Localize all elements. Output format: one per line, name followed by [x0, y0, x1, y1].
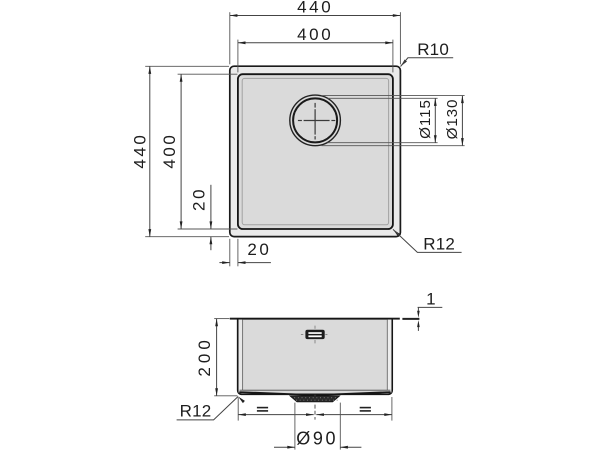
svg-text:400: 400 [297, 25, 333, 44]
svg-text:440: 440 [297, 0, 333, 17]
svg-text:20: 20 [247, 240, 271, 259]
svg-text:20: 20 [189, 187, 208, 211]
svg-text:1: 1 [426, 290, 435, 309]
svg-text:R12: R12 [423, 234, 455, 253]
svg-text:Ø130: Ø130 [444, 99, 461, 140]
svg-text:R12: R12 [180, 402, 212, 421]
svg-text:440: 440 [131, 133, 150, 169]
svg-text:Ø115: Ø115 [417, 99, 434, 139]
svg-text:400: 400 [160, 133, 179, 169]
svg-text:Ø90: Ø90 [296, 428, 338, 448]
svg-text:200: 200 [195, 336, 214, 376]
svg-text:R10: R10 [417, 40, 449, 59]
